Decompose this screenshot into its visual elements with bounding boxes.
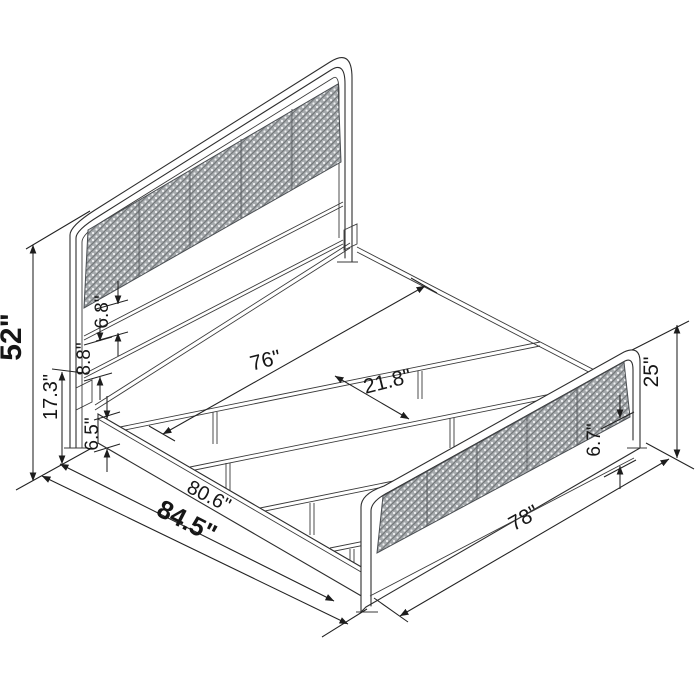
dimension-25: 25": [632, 321, 694, 469]
dimension-76-label: 76": [248, 346, 283, 376]
dimension-52-label: 52": [0, 313, 28, 361]
near-side-rail: [98, 414, 370, 601]
dimension-21-8: 21.8": [335, 365, 414, 419]
support-rail-1: [120, 342, 540, 431]
dimension-76-line: [163, 286, 425, 434]
dimension-17-3-label: 17.3": [40, 374, 62, 420]
dimension-8-8: 8.8": [74, 318, 112, 400]
diagram-canvas: 52" 17.3" 6.8" 8.8" 6.5": [0, 0, 700, 700]
dimension-80-6-extension: [322, 609, 367, 637]
dimension-21-8-label: 21.8": [361, 365, 413, 399]
dimension-6-8-label: 6.8": [92, 295, 113, 328]
support-rail-3-legs: [310, 503, 314, 535]
dimension-8-8-label: 8.8": [74, 342, 95, 375]
bed-dimension-diagram: 52" 17.3" 6.8" 8.8" 6.5": [0, 0, 700, 700]
dimension-25-label: 25": [640, 357, 663, 388]
dimension-6-7-label: 6.7": [584, 423, 605, 456]
dimension-6-5-label: 6.5": [82, 417, 103, 450]
headboard: [64, 58, 358, 448]
dimension-25-extensions: [632, 321, 694, 469]
dimension-17-3: 17.3": [40, 369, 84, 464]
dimension-78-extension: [374, 598, 408, 622]
headboard-cane-panel: [84, 84, 341, 308]
